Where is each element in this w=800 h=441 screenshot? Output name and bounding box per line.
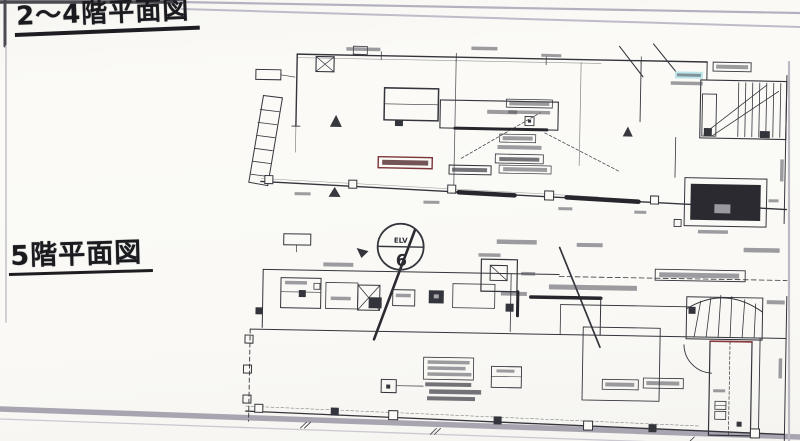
lower-symbol-box [478, 253, 536, 292]
upper-floor-plan [248, 36, 790, 235]
lower-top-labels [283, 234, 779, 266]
scanned-floor-plan-page: ELV 6 [0, 0, 800, 441]
lower-staircase [683, 295, 762, 374]
lower-heavy-walls [250, 287, 787, 338]
lower-floor-plan: ELV 6 [242, 221, 788, 441]
upper-elevator-block [674, 177, 767, 234]
lower-plan-title: 5階平面図 [8, 239, 153, 276]
floor-plan-drawing: ELV 6 [0, 0, 800, 441]
upper-left-label-box [256, 69, 295, 80]
lower-right-shaft [708, 295, 787, 440]
lower-right-labels [549, 267, 745, 292]
scan-edge-artifacts [0, 0, 800, 441]
upper-staircase [700, 80, 787, 140]
elevator-balloon: ELV 6 [374, 223, 424, 340]
upper-left-stair-strip [249, 95, 283, 186]
lower-door-room [582, 327, 660, 401]
balloon-top-text: ELV [394, 237, 408, 245]
upper-red-label [378, 157, 491, 175]
balloon-number-text: 6 [396, 251, 407, 270]
